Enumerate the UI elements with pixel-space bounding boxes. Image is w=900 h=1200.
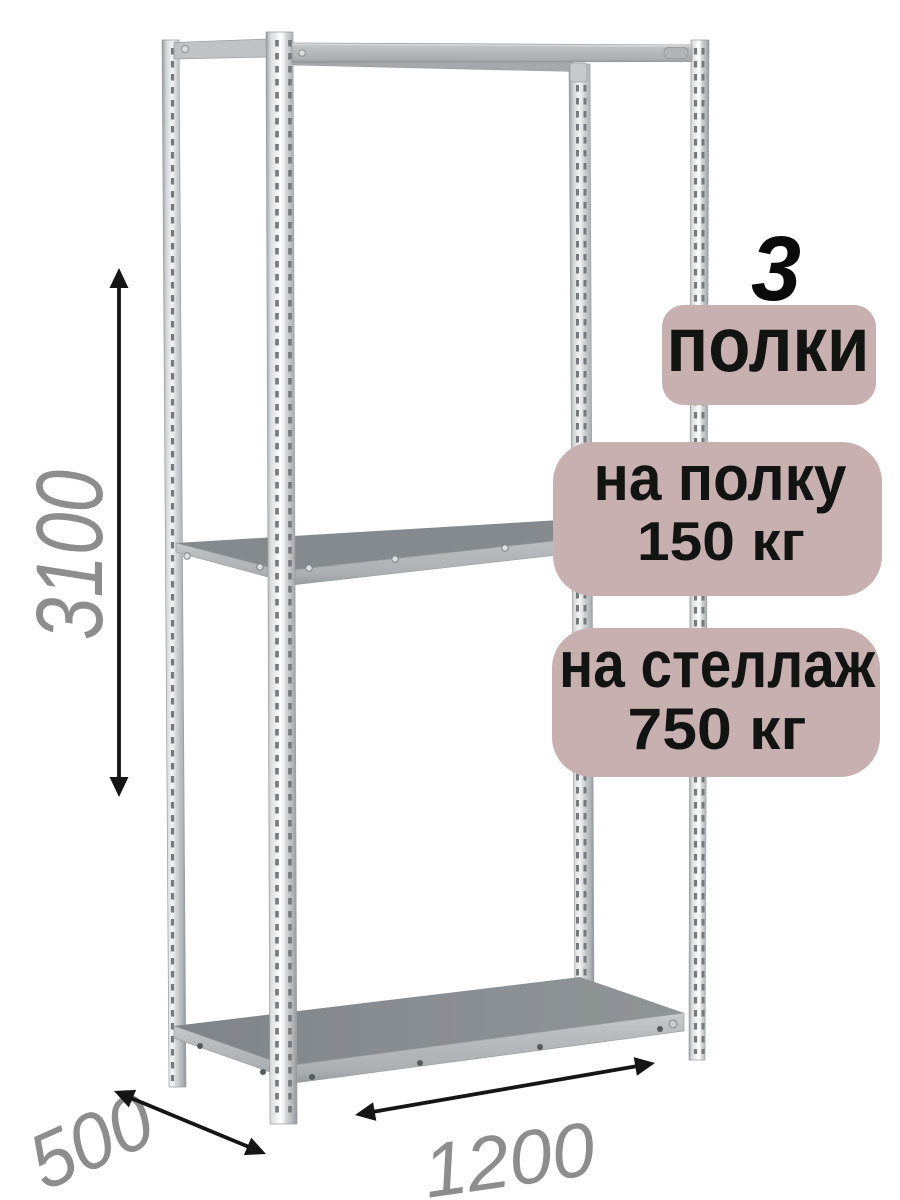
svg-text:750 кг: 750 кг bbox=[628, 697, 807, 762]
svg-text:полки: полки bbox=[667, 300, 870, 388]
svg-text:на стеллаж: на стеллаж bbox=[559, 627, 876, 701]
svg-text:150 кг: 150 кг bbox=[637, 510, 805, 572]
svg-text:3100: 3100 bbox=[17, 470, 123, 640]
svg-text:на полку: на полку bbox=[594, 442, 847, 514]
